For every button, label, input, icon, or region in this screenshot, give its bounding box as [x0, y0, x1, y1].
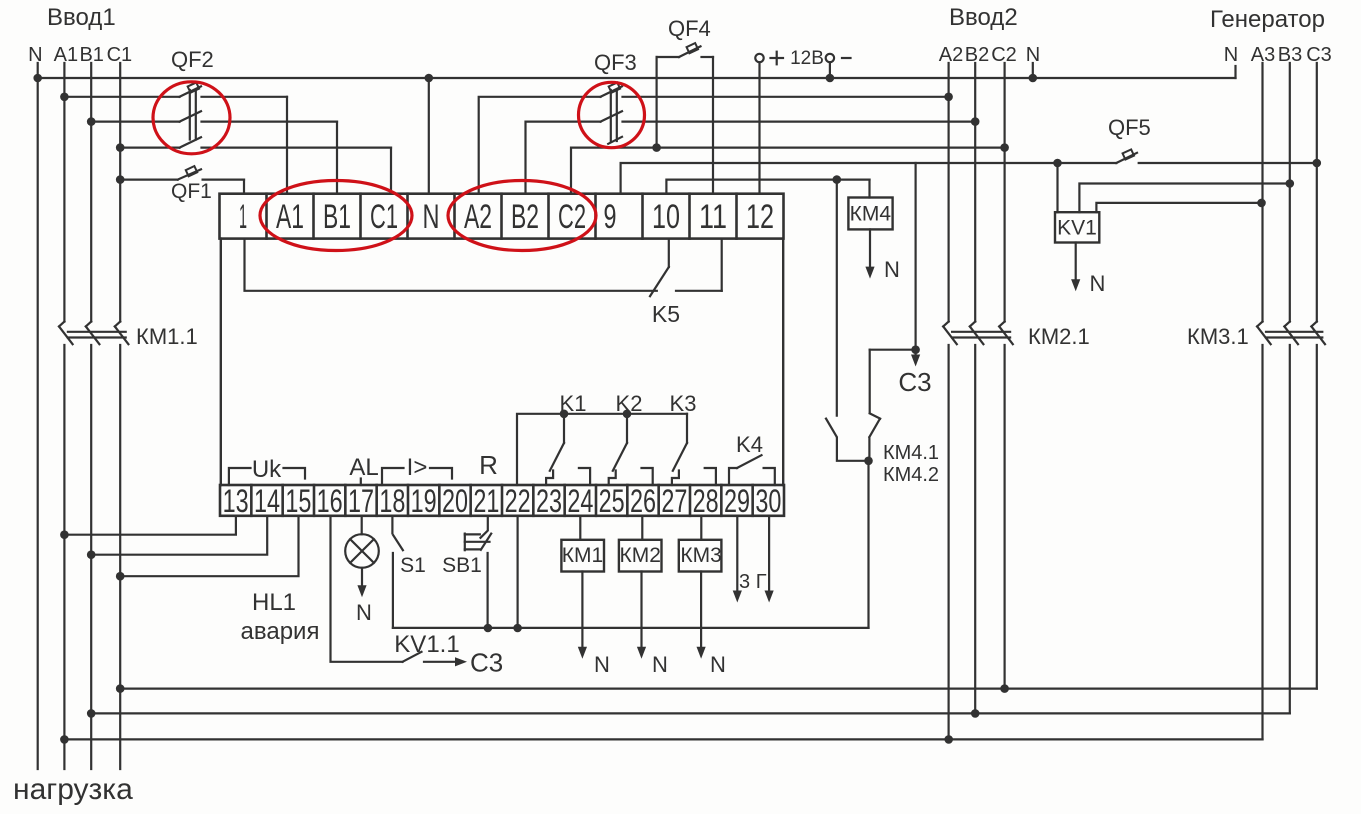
svg-text:A1: A1: [276, 198, 304, 236]
svg-text:N: N: [1224, 44, 1238, 66]
svg-text:QF2: QF2: [171, 47, 214, 72]
svg-text:QF5: QF5: [1108, 115, 1151, 140]
svg-text:16: 16: [317, 483, 343, 519]
svg-text:Ввод1: Ввод1: [47, 4, 116, 31]
svg-text:КМ4.2: КМ4.2: [883, 464, 939, 486]
svg-text:А3: А3: [1251, 44, 1275, 66]
svg-text:22: 22: [505, 483, 531, 519]
svg-text:С3: С3: [1306, 44, 1332, 66]
svg-text:21: 21: [473, 483, 499, 519]
svg-text:C2: C2: [558, 198, 586, 236]
svg-text:B1: B1: [323, 198, 351, 236]
svg-text:28: 28: [693, 483, 719, 519]
svg-text:C1: C1: [107, 44, 133, 66]
svg-text:QF1: QF1: [171, 180, 212, 203]
svg-text:K2: K2: [616, 391, 643, 416]
svg-text:12: 12: [746, 198, 774, 236]
svg-text:A2: A2: [939, 44, 963, 66]
svg-text:K4: K4: [736, 432, 763, 457]
svg-text:C1: C1: [370, 198, 398, 236]
svg-text:В3: В3: [1278, 44, 1302, 66]
svg-text:I>: I>: [407, 454, 428, 481]
svg-text:B1: B1: [79, 44, 103, 66]
svg-text:QF3: QF3: [594, 50, 637, 75]
svg-text:КМ1.1: КМ1.1: [136, 324, 198, 349]
svg-text:9: 9: [604, 198, 617, 236]
svg-text:КМ4.1: КМ4.1: [883, 442, 939, 464]
svg-text:КМ1: КМ1: [562, 544, 603, 567]
svg-text:N: N: [356, 600, 372, 625]
svg-text:13: 13: [223, 483, 249, 519]
svg-text:Uk: Uk: [252, 456, 282, 483]
svg-text:N: N: [423, 198, 440, 236]
svg-text:K5: K5: [652, 301, 680, 327]
svg-text:N: N: [652, 652, 668, 677]
svg-text:КМ2.1: КМ2.1: [1028, 324, 1090, 349]
svg-text:A1: A1: [54, 44, 78, 66]
svg-text:K1: K1: [560, 391, 587, 416]
svg-text:QF4: QF4: [668, 16, 711, 41]
svg-text:N: N: [884, 257, 900, 282]
svg-text:AL: AL: [349, 454, 378, 481]
svg-text:N: N: [1090, 271, 1106, 296]
svg-text:Генератор: Генератор: [1210, 6, 1325, 33]
svg-text:B2: B2: [965, 44, 989, 66]
svg-text:KV1.1: KV1.1: [394, 631, 459, 658]
svg-text:С3: С3: [470, 648, 503, 678]
svg-text:10: 10: [652, 198, 680, 236]
svg-text:N: N: [1026, 44, 1040, 66]
svg-text:SB1: SB1: [442, 554, 482, 577]
svg-text:19: 19: [411, 483, 437, 519]
svg-text:11: 11: [699, 198, 727, 236]
svg-text:N: N: [710, 652, 726, 677]
svg-text:14: 14: [254, 483, 280, 519]
svg-text:КМ3.1: КМ3.1: [1187, 324, 1249, 349]
svg-text:B2: B2: [511, 198, 539, 236]
svg-text:27: 27: [661, 483, 687, 519]
svg-text:29: 29: [724, 483, 750, 519]
svg-text:HL1: HL1: [252, 589, 296, 616]
svg-text:30: 30: [755, 483, 781, 519]
svg-text:нагрузка: нагрузка: [13, 773, 133, 806]
svg-text:3 Г: 3 Г: [739, 571, 767, 593]
svg-text:23: 23: [536, 483, 562, 519]
svg-text:Ввод2: Ввод2: [949, 4, 1018, 31]
svg-text:КМ2: КМ2: [619, 544, 660, 567]
svg-text:15: 15: [285, 483, 311, 519]
svg-text:18: 18: [379, 483, 405, 519]
svg-text:12В: 12В: [790, 48, 824, 69]
svg-text:КМ4: КМ4: [850, 203, 892, 226]
svg-text:KV1: KV1: [1057, 217, 1097, 240]
svg-text:N: N: [594, 652, 610, 677]
svg-text:N: N: [28, 44, 42, 66]
svg-text:C2: C2: [991, 44, 1017, 66]
svg-text:R: R: [479, 450, 498, 480]
svg-text:1: 1: [239, 198, 247, 236]
svg-text:A2: A2: [464, 198, 492, 236]
svg-text:17: 17: [348, 483, 374, 519]
svg-text:K3: K3: [670, 391, 697, 416]
svg-text:26: 26: [630, 483, 656, 519]
svg-text:25: 25: [599, 483, 625, 519]
svg-text:С3: С3: [898, 367, 931, 397]
svg-text:20: 20: [442, 483, 468, 519]
svg-text:КМ3: КМ3: [680, 544, 721, 567]
svg-text:S1: S1: [400, 554, 426, 577]
svg-text:авария: авария: [241, 618, 320, 645]
svg-text:24: 24: [567, 483, 593, 519]
